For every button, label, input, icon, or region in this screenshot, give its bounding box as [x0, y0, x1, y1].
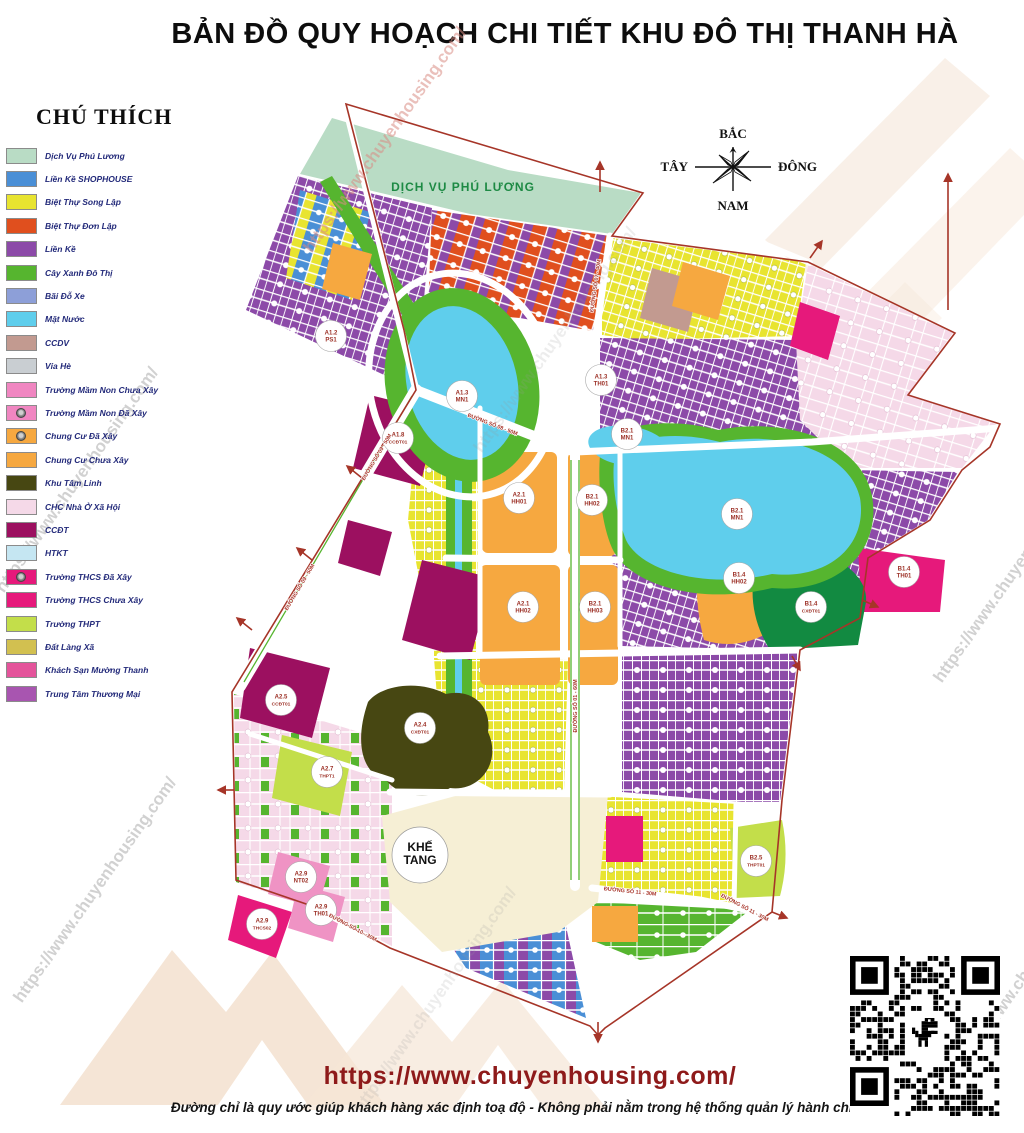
zone-label: B1.4HH02 [724, 563, 755, 594]
zone-label: A1.3MN1 [447, 381, 478, 412]
svg-text:MN1: MN1 [456, 398, 469, 404]
legend-label: Vỉa Hè [45, 361, 71, 371]
svg-text:MN1: MN1 [731, 516, 744, 522]
zone-label: A2.4CXĐT01 [405, 713, 436, 744]
legend-item-17: HTKT [6, 542, 231, 565]
zone-label: B1.4TH01 [889, 557, 920, 588]
svg-text:PS1: PS1 [325, 338, 337, 344]
legend-item-3: Biệt Thự Đơn Lập [6, 214, 231, 237]
svg-text:B2.1: B2.1 [731, 509, 744, 515]
legend-swatch [6, 452, 37, 468]
legend-item-6: Bãi Đỗ Xe [6, 284, 231, 307]
legend-label: Liền Kề [45, 244, 76, 254]
zone-label: B2.1HH02 [577, 485, 608, 516]
legend-swatch [6, 218, 37, 234]
legend-item-2: Biệt Thự Song Lập [6, 191, 231, 214]
svg-text:TH01: TH01 [897, 574, 912, 580]
svg-text:A2.1: A2.1 [513, 493, 526, 499]
zone-label: B2.5THPT01 [741, 846, 772, 877]
website-url-link[interactable]: https://www.chuyenhousing.com/ [120, 1062, 940, 1091]
legend-item-20: Trường THPT [6, 612, 231, 635]
legend-swatch [6, 265, 37, 281]
legend-swatch [6, 428, 37, 444]
svg-text:TH01: TH01 [314, 912, 329, 918]
legend-swatch [6, 382, 37, 398]
legend-swatch [6, 311, 37, 327]
legend-swatch [6, 592, 37, 608]
legend-item-1: Liền Kề SHOPHOUSE [6, 167, 231, 190]
legend-item-23: Trung Tâm Thương Mại [6, 682, 231, 705]
legend-item-11: Trường Mầm Non Đã Xây [6, 401, 231, 424]
legend-label: Chung Cư Chưa Xây [45, 455, 128, 465]
svg-text:HH02: HH02 [584, 502, 600, 508]
legend-swatch [6, 171, 37, 187]
zone-label: A2.9THCS02 [247, 909, 278, 940]
zone-label: A2.1HH01 [504, 483, 535, 514]
legend-swatch [6, 358, 37, 374]
legend-label: Cây Xanh Đô Thị [45, 268, 113, 278]
legend-label: Chung Cư Đã Xây [45, 431, 117, 441]
zone-label: A1.3TH01 [586, 365, 617, 396]
compass-north-label: BẮC [719, 126, 746, 141]
svg-text:B1.4: B1.4 [898, 567, 911, 573]
svg-text:TH01: TH01 [594, 382, 609, 388]
svg-text:CXĐT01: CXĐT01 [411, 730, 430, 736]
legend-panel: CHÚ THÍCH Dịch Vụ Phú LươngLiền Kề SHOPH… [6, 104, 231, 705]
legend-swatch [6, 335, 37, 351]
svg-text:A2.9: A2.9 [256, 919, 269, 925]
legend-label: Trường Mầm Non Chưa Xây [45, 385, 158, 395]
svg-text:TANG: TANG [403, 853, 436, 867]
legend-swatch [6, 475, 37, 491]
svg-text:B1.4: B1.4 [733, 573, 746, 579]
compass-rose: BẮC NAM TÂY ĐÔNG [661, 126, 817, 213]
legend-item-21: Đất Làng Xã [6, 635, 231, 658]
legend-item-8: CCDV [6, 331, 231, 354]
legend-item-10: Trường Mầm Non Chưa Xây [6, 378, 231, 401]
svg-text:MN1: MN1 [621, 436, 634, 442]
legend-item-15: CHC Nhà Ở Xã Hội [6, 495, 231, 518]
svg-text:A1.3: A1.3 [595, 375, 608, 381]
legend-label: CHC Nhà Ở Xã Hội [45, 502, 120, 512]
poster-page: { "title": "BẢN ĐỒ QUY HOẠCH CHI TIẾT KH… [0, 0, 1024, 1133]
built-marker-icon [16, 431, 26, 441]
road-label: ĐƯỜNG SỐ 01 - 60M [571, 679, 579, 733]
legend-item-13: Chung Cư Chưa Xây [6, 448, 231, 471]
legend-label: Trường THCS Chưa Xây [45, 595, 143, 605]
legend-label: Đất Làng Xã [45, 642, 94, 652]
qr-code [850, 956, 1000, 1116]
legend-label: Bãi Đỗ Xe [45, 291, 85, 301]
svg-text:HH03: HH03 [587, 609, 603, 615]
svg-text:A1.2: A1.2 [325, 331, 338, 337]
zone-label: B2.1HH03 [580, 592, 611, 623]
legend-swatch [6, 569, 37, 585]
zone-label: B2.1MN1 [722, 499, 753, 530]
zone-label: A2.7THPT1 [312, 757, 343, 788]
disclaimer-text: Đường chỉ là quy ước giúp khách hàng xác… [60, 1100, 980, 1115]
legend-item-22: Khách Sạn Mường Thanh [6, 659, 231, 682]
legend-label: CCDV [45, 338, 69, 348]
legend-item-4: Liền Kề [6, 238, 231, 261]
legend-swatch [6, 662, 37, 678]
legend-swatch [6, 686, 37, 702]
svg-text:CCĐT01: CCĐT01 [389, 440, 408, 446]
svg-text:THCS02: THCS02 [253, 926, 272, 932]
area-label-dich-vu-phu-luong: DỊCH VỤ PHÚ LƯƠNG [391, 179, 535, 194]
legend-swatch [6, 616, 37, 632]
legend-label: CCĐT [45, 525, 69, 535]
legend-label: Khu Tâm Linh [45, 478, 102, 488]
built-marker-icon [16, 408, 26, 418]
svg-text:A2.1: A2.1 [517, 602, 530, 608]
compass-south-label: NAM [717, 198, 748, 213]
legend-label: Mặt Nước [45, 314, 85, 324]
zone-label: A1.2PS1 [316, 321, 347, 352]
svg-text:A2.9: A2.9 [295, 872, 308, 878]
svg-text:B2.1: B2.1 [586, 495, 599, 501]
road-label: ĐƯỜNG SỐ 09 - 50M [282, 562, 316, 612]
legend-swatch [6, 241, 37, 257]
legend-label: Trường THCS Đã Xây [45, 572, 132, 582]
svg-text:A2.4: A2.4 [414, 723, 427, 729]
zone-label: A2.9NT02 [286, 862, 317, 893]
legend-swatch [6, 639, 37, 655]
svg-text:A1.8: A1.8 [392, 433, 405, 439]
svg-text:CCĐT01: CCĐT01 [272, 702, 291, 708]
legend-label: Liền Kề SHOPHOUSE [45, 174, 132, 184]
svg-text:THPT01: THPT01 [747, 863, 765, 869]
svg-text:CXĐT01: CXĐT01 [802, 609, 821, 615]
legend-label: Biệt Thự Đơn Lập [45, 221, 117, 231]
legend-label: Dịch Vụ Phú Lương [45, 151, 125, 161]
legend-item-19: Trường THCS Chưa Xây [6, 588, 231, 611]
svg-text:B2.1: B2.1 [589, 602, 602, 608]
legend-item-9: Vỉa Hè [6, 355, 231, 378]
zone-label: B2.1MN1 [612, 419, 643, 450]
svg-text:NT02: NT02 [294, 879, 309, 885]
svg-text:HH02: HH02 [515, 609, 531, 615]
legend-item-0: Dịch Vụ Phú Lương [6, 144, 231, 167]
svg-text:A2.5: A2.5 [275, 695, 288, 701]
built-marker-icon [16, 572, 26, 582]
legend-swatch [6, 194, 37, 210]
legend-swatch [6, 405, 37, 421]
svg-text:A2.7: A2.7 [321, 767, 334, 773]
svg-text:B1.4: B1.4 [805, 602, 818, 608]
legend-label: Biệt Thự Song Lập [45, 197, 121, 207]
legend-swatch [6, 148, 37, 164]
svg-text:HH01: HH01 [511, 500, 527, 506]
legend-label: Trường THPT [45, 619, 100, 629]
legend-swatch [6, 288, 37, 304]
svg-text:B2.5: B2.5 [750, 856, 763, 862]
legend-items: Dịch Vụ Phú LươngLiền Kề SHOPHOUSEBiệt T… [6, 144, 231, 705]
zone-label: A2.1HH02 [508, 592, 539, 623]
zone-label: A2.5CCĐT01 [266, 685, 297, 716]
legend-heading: CHÚ THÍCH [36, 104, 231, 130]
legend-item-5: Cây Xanh Đô Thị [6, 261, 231, 284]
zone-label: B1.4CXĐT01 [796, 592, 827, 623]
zone-label: A2.9TH01 [306, 895, 337, 926]
compass-west-label: TÂY [661, 159, 689, 174]
area-label-khe-tang: KHẾTANG [392, 827, 448, 883]
legend-swatch [6, 522, 37, 538]
compass-east-label: ĐÔNG [778, 159, 817, 174]
svg-text:THPT1: THPT1 [319, 774, 335, 780]
legend-item-14: Khu Tâm Linh [6, 471, 231, 494]
legend-label: Trung Tâm Thương Mại [45, 689, 140, 699]
legend-item-12: Chung Cư Đã Xây [6, 425, 231, 448]
legend-label: Trường Mầm Non Đã Xây [45, 408, 147, 418]
legend-label: HTKT [45, 548, 68, 558]
svg-text:A2.9: A2.9 [315, 905, 328, 911]
svg-text:HH02: HH02 [731, 580, 747, 586]
legend-label: Khách Sạn Mường Thanh [45, 665, 148, 675]
legend-swatch [6, 545, 37, 561]
legend-swatch [6, 499, 37, 515]
svg-text:A1.3: A1.3 [456, 391, 469, 397]
svg-text:B2.1: B2.1 [621, 429, 634, 435]
legend-item-16: CCĐT [6, 518, 231, 541]
svg-text:KHẾ: KHẾ [407, 839, 432, 854]
legend-item-7: Mặt Nước [6, 308, 231, 331]
legend-item-18: Trường THCS Đã Xây [6, 565, 231, 588]
